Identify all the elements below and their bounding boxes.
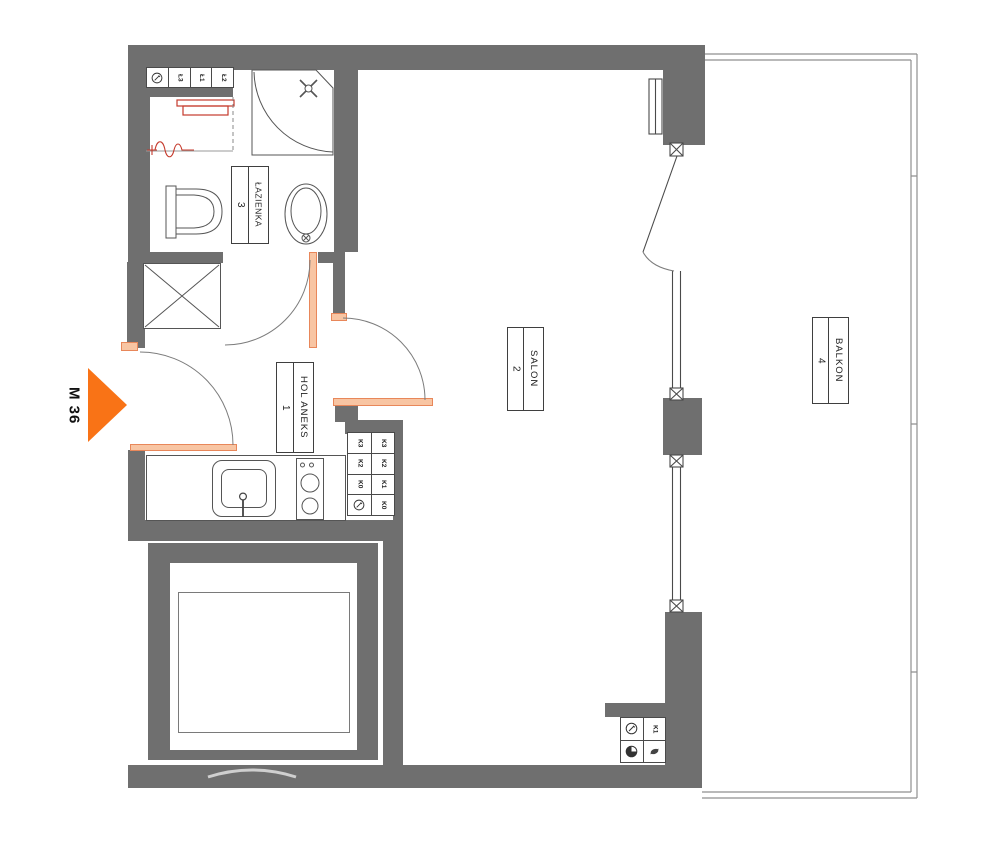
point-label: K1	[372, 475, 395, 495]
elevator-car	[178, 592, 350, 733]
room-label-hol-aneks: HOL ANEKS 1	[276, 362, 314, 453]
point-label: K0	[348, 475, 371, 495]
point-label: K3	[348, 433, 371, 453]
entrance-door-arc	[140, 352, 233, 445]
room-number: 1	[277, 363, 294, 452]
window-glazing	[673, 467, 681, 600]
window-frame-icon	[670, 143, 683, 612]
room-label-lazienka: ŁAZIENKA 3	[231, 166, 269, 244]
room-label-salon: SALON 2	[507, 327, 544, 411]
balcony-door-leaf	[643, 156, 677, 252]
wall-bathroom-bottom	[143, 252, 223, 263]
tap-icon	[621, 718, 643, 740]
tap-icon	[147, 68, 168, 87]
glazing-wall	[643, 79, 683, 612]
room-name: ŁAZIENKA	[248, 167, 268, 243]
drain-squiggle-icon	[147, 142, 194, 157]
salon-points-grid: K1	[620, 717, 666, 763]
washer-icon	[177, 100, 234, 115]
bathroom-door-arc	[225, 260, 310, 345]
point-label: Ł3	[169, 68, 190, 87]
kitchen-stove	[296, 458, 324, 520]
room-number: 4	[813, 318, 829, 403]
salon-door-arc	[343, 318, 425, 400]
phi-icon	[644, 741, 666, 763]
room-name: SALON	[523, 328, 543, 410]
wall-k1-step	[605, 703, 667, 717]
unit-label: M 36	[64, 376, 84, 436]
point-label: K3	[372, 433, 395, 453]
wall-pillar-top-right	[663, 45, 705, 145]
balcony-door-arc	[643, 252, 674, 271]
shower-icon	[252, 70, 333, 155]
kitchen-points-grid: K3 K3 K2 K2 K0 K1 K0	[347, 432, 395, 516]
point-label: Ł1	[191, 68, 212, 87]
room-label-balkon: BALKON 4	[812, 317, 849, 404]
new-wall-entrance-cap	[121, 342, 138, 351]
half-circle-icon	[621, 741, 643, 763]
wall-bathroom-strip	[143, 87, 233, 97]
room-name: BALKON	[828, 318, 848, 403]
wall-hall-salon	[333, 252, 345, 314]
room-name: HOL ANEKS	[293, 363, 313, 452]
entrance-arrow-icon	[88, 368, 127, 442]
tap-icon	[348, 495, 371, 515]
wall-kitchen-bottom	[128, 520, 403, 541]
wall-salon-left-lower	[383, 540, 403, 765]
new-wall-cap	[331, 313, 347, 321]
balcony-railing	[702, 54, 917, 798]
window-glazing	[673, 271, 681, 388]
bathroom-partition	[146, 97, 233, 157]
toilet-icon	[166, 186, 222, 238]
floor-plan: Ł3 Ł1 Ł2 K3 K3 K2 K2 K0 K1 K0 K1 HOL ANE…	[0, 0, 1000, 841]
wall-pillar-bottom-right	[665, 612, 702, 767]
radiator-icon	[649, 79, 662, 134]
new-wall-kitchen	[130, 444, 237, 451]
point-label: K2	[348, 454, 371, 474]
wall-bottom	[128, 765, 702, 788]
washbasin-icon	[285, 184, 327, 244]
point-label: K2	[372, 454, 395, 474]
room-number: 3	[232, 167, 249, 243]
point-label: Ł2	[212, 68, 233, 87]
bathroom-points-row: Ł3 Ł1 Ł2	[146, 67, 234, 88]
new-wall-salon-door	[333, 398, 433, 406]
wall-bathroom-salon	[334, 45, 358, 252]
new-wall-bathroom-door	[309, 252, 317, 348]
wall-pillar-mid-right	[663, 398, 702, 455]
kitchen-sink-basin	[221, 469, 267, 508]
duct-shaft-box	[143, 263, 221, 329]
point-label: K0	[372, 495, 395, 515]
point-label: K1	[644, 718, 666, 740]
room-number: 2	[508, 328, 524, 410]
